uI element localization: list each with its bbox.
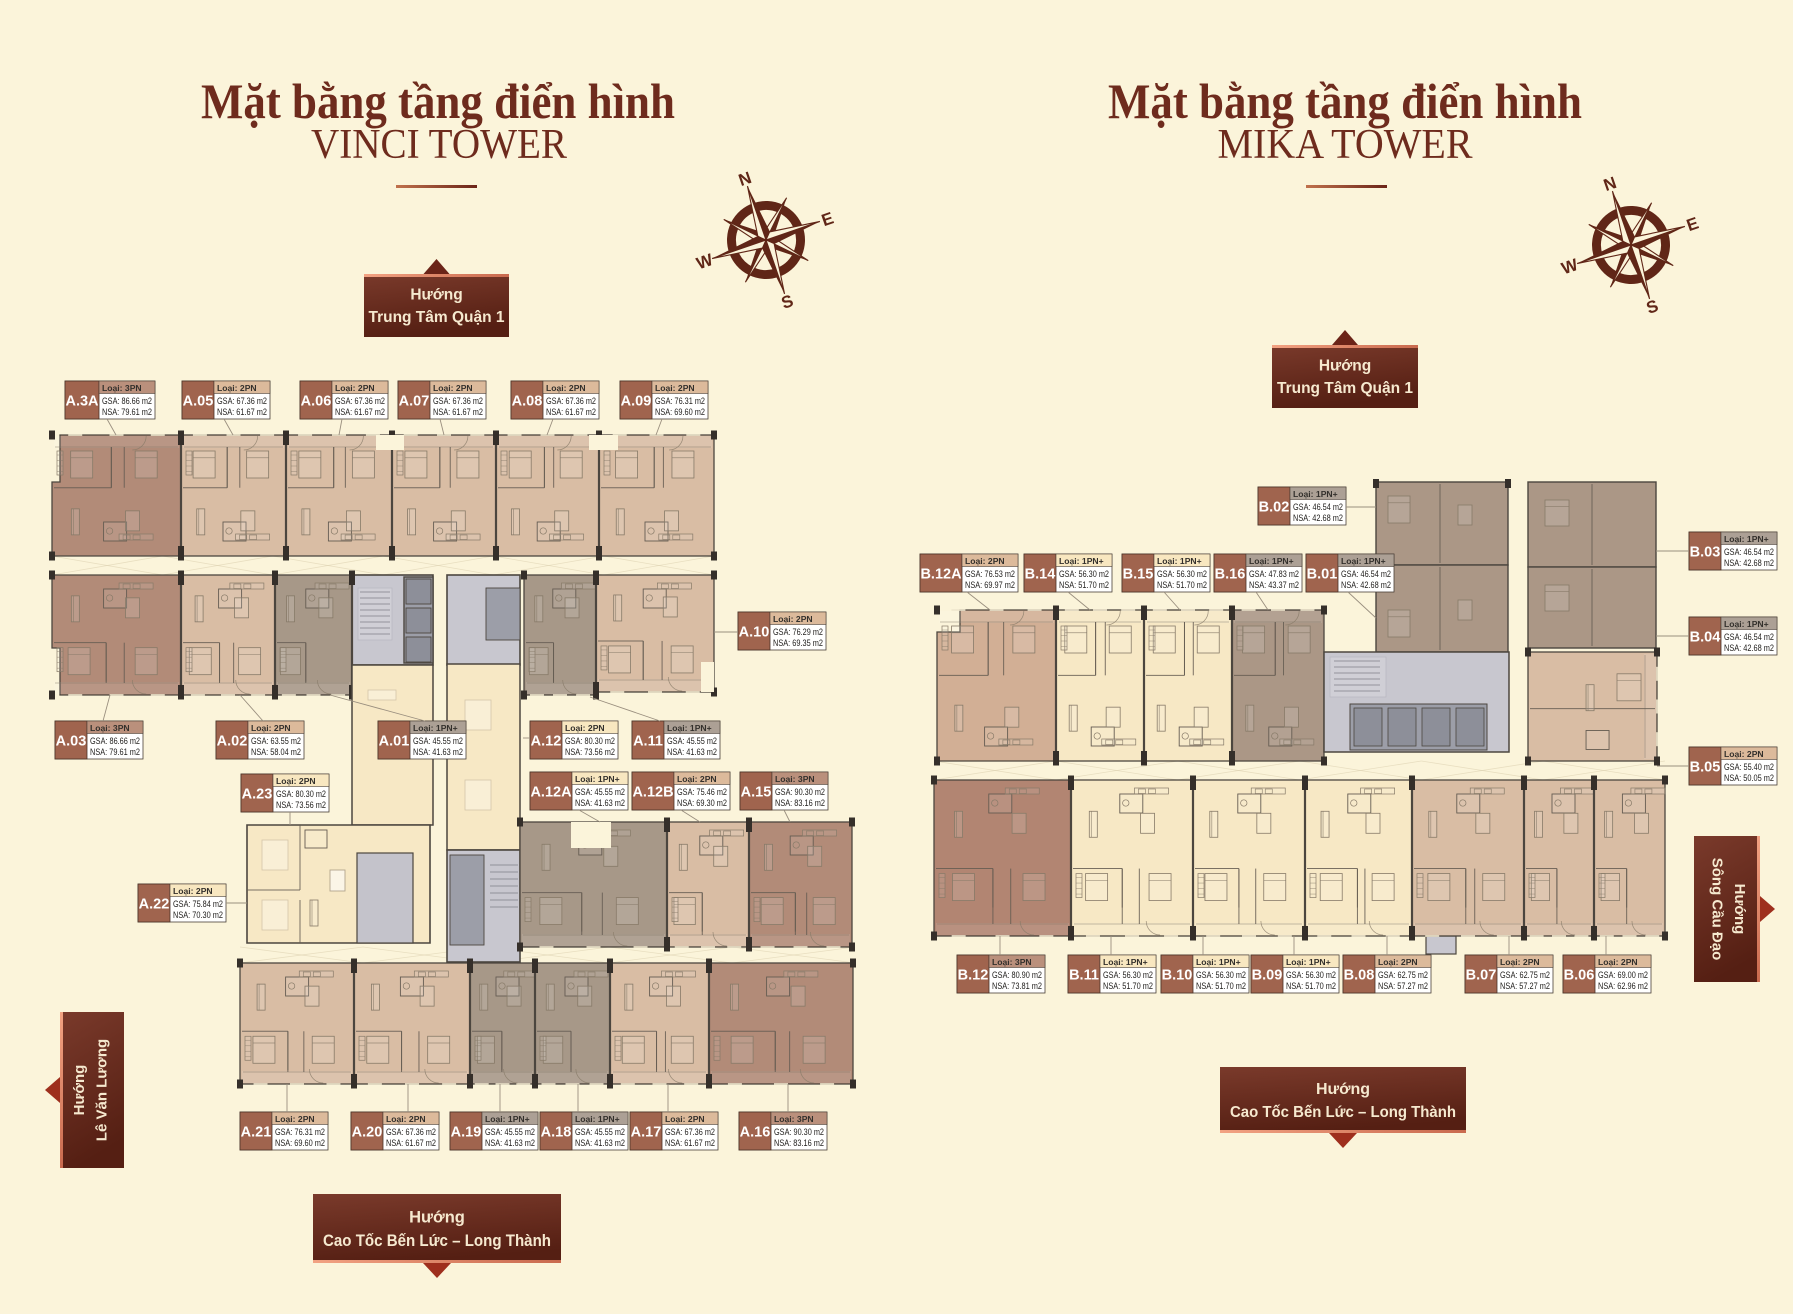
svg-text:GSA: 62.75 m2: GSA: 62.75 m2 bbox=[1378, 970, 1428, 980]
svg-text:GSA: 80.30 m2: GSA: 80.30 m2 bbox=[276, 789, 326, 799]
svg-text:A.06: A.06 bbox=[301, 394, 332, 410]
svg-text:Loại: 2PN: Loại: 2PN bbox=[1724, 749, 1764, 759]
svg-text:NSA: 51.70 m2: NSA: 51.70 m2 bbox=[1059, 580, 1109, 590]
svg-text:B.02: B.02 bbox=[1259, 500, 1290, 516]
svg-text:Loại: 1PN+: Loại: 1PN+ bbox=[1724, 619, 1769, 629]
svg-text:VINCI TOWER: VINCI TOWER bbox=[311, 122, 567, 168]
svg-text:Loại: 1PN+: Loại: 1PN+ bbox=[1059, 556, 1104, 566]
svg-text:GSA: 86.66 m2: GSA: 86.66 m2 bbox=[90, 736, 140, 746]
svg-text:GSA: 76.31 m2: GSA: 76.31 m2 bbox=[275, 1127, 325, 1137]
svg-text:GSA: 67.36 m2: GSA: 67.36 m2 bbox=[217, 396, 267, 406]
svg-text:Loại: 3PN: Loại: 3PN bbox=[775, 774, 815, 784]
svg-text:GSA: 67.36 m2: GSA: 67.36 m2 bbox=[546, 396, 596, 406]
svg-text:Loại: 2PN: Loại: 2PN bbox=[217, 383, 257, 393]
svg-text:Loại: 1PN+: Loại: 1PN+ bbox=[1196, 957, 1241, 967]
svg-text:GSA: 46.54 m2: GSA: 46.54 m2 bbox=[1341, 569, 1391, 579]
svg-text:GSA: 56.30 m2: GSA: 56.30 m2 bbox=[1157, 569, 1207, 579]
svg-text:Sông Cầu Đạo: Sông Cầu Đạo bbox=[1709, 858, 1726, 961]
svg-text:Loại: 2PN: Loại: 2PN bbox=[173, 886, 213, 896]
svg-text:NSA: 57.27 m2: NSA: 57.27 m2 bbox=[1500, 981, 1550, 991]
svg-text:A.20: A.20 bbox=[352, 1125, 383, 1141]
svg-text:A.07: A.07 bbox=[399, 394, 430, 410]
svg-text:NSA: 61.67 m2: NSA: 61.67 m2 bbox=[546, 407, 596, 417]
svg-text:A.18: A.18 bbox=[541, 1125, 572, 1141]
svg-text:Loại: 2PN: Loại: 2PN bbox=[773, 614, 813, 624]
svg-text:Loại: 3PN: Loại: 3PN bbox=[90, 723, 130, 733]
svg-text:GSA: 62.75 m2: GSA: 62.75 m2 bbox=[1500, 970, 1550, 980]
svg-text:GSA: 80.90 m2: GSA: 80.90 m2 bbox=[992, 970, 1042, 980]
svg-text:NSA: 83.16 m2: NSA: 83.16 m2 bbox=[774, 1138, 824, 1148]
svg-text:A.02: A.02 bbox=[217, 734, 248, 750]
svg-text:GSA: 47.83 m2: GSA: 47.83 m2 bbox=[1249, 569, 1299, 579]
svg-text:Loại: 1PN+: Loại: 1PN+ bbox=[1249, 556, 1294, 566]
svg-text:B.14: B.14 bbox=[1025, 567, 1056, 583]
svg-text:GSA: 80.30 m2: GSA: 80.30 m2 bbox=[565, 736, 615, 746]
svg-text:Hướng: Hướng bbox=[1731, 884, 1748, 935]
svg-text:Loại: 2PN: Loại: 2PN bbox=[965, 556, 1005, 566]
svg-text:B.04: B.04 bbox=[1690, 630, 1721, 646]
svg-text:NSA: 51.70 m2: NSA: 51.70 m2 bbox=[1196, 981, 1246, 991]
svg-text:B.07: B.07 bbox=[1466, 968, 1497, 984]
svg-text:GSA: 86.66 m2: GSA: 86.66 m2 bbox=[102, 396, 152, 406]
svg-text:B.01: B.01 bbox=[1307, 567, 1338, 583]
svg-text:NSA: 61.67 m2: NSA: 61.67 m2 bbox=[386, 1138, 436, 1148]
svg-text:GSA: 69.00 m2: GSA: 69.00 m2 bbox=[1598, 970, 1648, 980]
svg-text:A.22: A.22 bbox=[139, 897, 170, 913]
svg-text:GSA: 75.84 m2: GSA: 75.84 m2 bbox=[173, 899, 223, 909]
svg-text:Hướng: Hướng bbox=[1316, 1081, 1370, 1098]
svg-text:Loại: 2PN: Loại: 2PN bbox=[386, 1114, 426, 1124]
svg-text:Loại: 2PN: Loại: 2PN bbox=[1378, 957, 1418, 967]
svg-text:Loại: 1PN+: Loại: 1PN+ bbox=[1293, 489, 1338, 499]
svg-text:GSA: 90.30 m2: GSA: 90.30 m2 bbox=[775, 787, 825, 797]
svg-text:NSA: 70.30 m2: NSA: 70.30 m2 bbox=[173, 910, 223, 920]
svg-text:Mặt bằng tầng điển hình: Mặt bằng tầng điển hình bbox=[201, 73, 675, 129]
svg-text:GSA: 75.46 m2: GSA: 75.46 m2 bbox=[677, 787, 727, 797]
svg-text:NSA: 69.60 m2: NSA: 69.60 m2 bbox=[655, 407, 705, 417]
svg-text:GSA: 76.53 m2: GSA: 76.53 m2 bbox=[965, 569, 1015, 579]
svg-text:Loại: 2PN: Loại: 2PN bbox=[677, 774, 717, 784]
svg-text:NSA: 41.63 m2: NSA: 41.63 m2 bbox=[413, 747, 463, 757]
svg-text:GSA: 90.30 m2: GSA: 90.30 m2 bbox=[774, 1127, 824, 1137]
svg-text:A.03: A.03 bbox=[56, 734, 87, 750]
svg-text:NSA: 50.05 m2: NSA: 50.05 m2 bbox=[1724, 773, 1774, 783]
svg-text:Loại: 2PN: Loại: 2PN bbox=[1598, 957, 1638, 967]
svg-text:Loại: 1PN+: Loại: 1PN+ bbox=[1724, 534, 1769, 544]
svg-text:NSA: 41.63 m2: NSA: 41.63 m2 bbox=[575, 798, 625, 808]
svg-text:NSA: 73.81 m2: NSA: 73.81 m2 bbox=[992, 981, 1042, 991]
svg-text:NSA: 42.68 m2: NSA: 42.68 m2 bbox=[1341, 580, 1391, 590]
svg-text:B.12: B.12 bbox=[958, 968, 989, 984]
svg-text:A.01: A.01 bbox=[379, 734, 410, 750]
svg-text:Loại: 1PN+: Loại: 1PN+ bbox=[413, 723, 458, 733]
svg-text:GSA: 55.40 m2: GSA: 55.40 m2 bbox=[1724, 762, 1774, 772]
svg-text:NSA: 79.61 m2: NSA: 79.61 m2 bbox=[102, 407, 152, 417]
svg-text:NSA: 61.67 m2: NSA: 61.67 m2 bbox=[217, 407, 267, 417]
svg-text:NSA: 73.56 m2: NSA: 73.56 m2 bbox=[276, 800, 326, 810]
svg-text:Loại: 2PN: Loại: 2PN bbox=[546, 383, 586, 393]
svg-text:A.12: A.12 bbox=[531, 734, 562, 750]
svg-text:Loại: 1PN+: Loại: 1PN+ bbox=[1286, 957, 1331, 967]
svg-text:NSA: 41.63 m2: NSA: 41.63 m2 bbox=[575, 1138, 625, 1148]
svg-text:NSA: 61.67 m2: NSA: 61.67 m2 bbox=[433, 407, 483, 417]
svg-text:GSA: 67.36 m2: GSA: 67.36 m2 bbox=[433, 396, 483, 406]
svg-text:NSA: 69.30 m2: NSA: 69.30 m2 bbox=[677, 798, 727, 808]
svg-text:B.06: B.06 bbox=[1564, 968, 1595, 984]
svg-text:Trung Tâm Quận 1: Trung Tâm Quận 1 bbox=[368, 309, 504, 326]
svg-text:GSA: 45.55 m2: GSA: 45.55 m2 bbox=[413, 736, 463, 746]
svg-text:GSA: 56.30 m2: GSA: 56.30 m2 bbox=[1196, 970, 1246, 980]
svg-text:NSA: 42.68 m2: NSA: 42.68 m2 bbox=[1724, 643, 1774, 653]
svg-text:A.21: A.21 bbox=[241, 1125, 272, 1141]
svg-text:Loại: 2PN: Loại: 2PN bbox=[1500, 957, 1540, 967]
svg-text:A.15: A.15 bbox=[741, 785, 772, 801]
svg-text:Loại: 2PN: Loại: 2PN bbox=[433, 383, 473, 393]
svg-text:Hướng: Hướng bbox=[409, 1208, 465, 1226]
svg-text:GSA: 67.36 m2: GSA: 67.36 m2 bbox=[386, 1127, 436, 1137]
svg-text:Loại: 1PN+: Loại: 1PN+ bbox=[575, 1114, 620, 1124]
svg-text:GSA: 45.55 m2: GSA: 45.55 m2 bbox=[485, 1127, 535, 1137]
svg-text:Loại: 2PN: Loại: 2PN bbox=[251, 723, 291, 733]
svg-text:Loại: 3PN: Loại: 3PN bbox=[992, 957, 1032, 967]
svg-text:NSA: 61.67 m2: NSA: 61.67 m2 bbox=[665, 1138, 715, 1148]
svg-text:B.09: B.09 bbox=[1252, 968, 1283, 984]
svg-text:Loại: 1PN+: Loại: 1PN+ bbox=[667, 723, 712, 733]
svg-text:GSA: 67.36 m2: GSA: 67.36 m2 bbox=[335, 396, 385, 406]
svg-text:NSA: 43.37 m2: NSA: 43.37 m2 bbox=[1249, 580, 1299, 590]
svg-text:Loại: 2PN: Loại: 2PN bbox=[275, 1114, 315, 1124]
svg-text:A.10: A.10 bbox=[739, 625, 770, 641]
svg-text:A.17: A.17 bbox=[631, 1125, 662, 1141]
svg-text:Hướng: Hướng bbox=[71, 1065, 88, 1116]
svg-text:B.11: B.11 bbox=[1069, 968, 1099, 984]
svg-text:NSA: 62.96 m2: NSA: 62.96 m2 bbox=[1598, 981, 1648, 991]
svg-text:NSA: 51.70 m2: NSA: 51.70 m2 bbox=[1286, 981, 1336, 991]
svg-text:Loại: 1PN+: Loại: 1PN+ bbox=[1341, 556, 1386, 566]
svg-text:A.16: A.16 bbox=[740, 1125, 771, 1141]
svg-text:GSA: 46.54 m2: GSA: 46.54 m2 bbox=[1724, 632, 1774, 642]
svg-text:Hướng: Hướng bbox=[1319, 358, 1371, 375]
svg-text:Trung Tâm Quận 1: Trung Tâm Quận 1 bbox=[1277, 380, 1413, 397]
svg-text:B.05: B.05 bbox=[1690, 760, 1721, 776]
svg-text:Lê Văn Lương: Lê Văn Lương bbox=[94, 1039, 111, 1141]
svg-text:Hướng: Hướng bbox=[410, 287, 462, 304]
svg-text:NSA: 61.67 m2: NSA: 61.67 m2 bbox=[335, 407, 385, 417]
svg-text:A.12A: A.12A bbox=[530, 785, 572, 801]
svg-text:Loại: 2PN: Loại: 2PN bbox=[335, 383, 375, 393]
svg-text:Loại: 3PN: Loại: 3PN bbox=[102, 383, 142, 393]
svg-text:Loại: 2PN: Loại: 2PN bbox=[655, 383, 695, 393]
svg-text:MIKA TOWER: MIKA TOWER bbox=[1218, 122, 1473, 168]
svg-text:B.12A: B.12A bbox=[920, 567, 962, 583]
svg-text:Loại: 2PN: Loại: 2PN bbox=[665, 1114, 705, 1124]
svg-text:NSA: 58.04 m2: NSA: 58.04 m2 bbox=[251, 747, 301, 757]
svg-text:A.19: A.19 bbox=[451, 1125, 482, 1141]
svg-text:A.08: A.08 bbox=[512, 394, 543, 410]
svg-text:GSA: 45.55 m2: GSA: 45.55 m2 bbox=[575, 787, 625, 797]
svg-text:Loại: 2PN: Loại: 2PN bbox=[565, 723, 605, 733]
svg-text:NSA: 69.60 m2: NSA: 69.60 m2 bbox=[275, 1138, 325, 1148]
svg-text:A.11: A.11 bbox=[633, 734, 663, 750]
svg-text:NSA: 42.68 m2: NSA: 42.68 m2 bbox=[1293, 513, 1343, 523]
svg-text:Loại: 1PN+: Loại: 1PN+ bbox=[1103, 957, 1148, 967]
svg-text:Mặt bằng tầng điển hình: Mặt bằng tầng điển hình bbox=[1108, 73, 1582, 129]
svg-text:NSA: 73.56 m2: NSA: 73.56 m2 bbox=[565, 747, 615, 757]
svg-text:NSA: 51.70 m2: NSA: 51.70 m2 bbox=[1103, 981, 1153, 991]
svg-text:NSA: 57.27 m2: NSA: 57.27 m2 bbox=[1378, 981, 1428, 991]
svg-text:B.08: B.08 bbox=[1344, 968, 1375, 984]
svg-text:Cao Tốc Bến Lức – Long Thành: Cao Tốc Bến Lức – Long Thành bbox=[323, 1232, 551, 1250]
svg-text:NSA: 42.68 m2: NSA: 42.68 m2 bbox=[1724, 558, 1774, 568]
svg-text:A.05: A.05 bbox=[183, 394, 214, 410]
svg-text:Cao Tốc Bến Lức – Long Thành: Cao Tốc Bến Lức – Long Thành bbox=[1230, 1104, 1456, 1121]
svg-text:GSA: 46.54 m2: GSA: 46.54 m2 bbox=[1293, 502, 1343, 512]
svg-text:GSA: 76.31 m2: GSA: 76.31 m2 bbox=[655, 396, 705, 406]
svg-text:B.15: B.15 bbox=[1123, 567, 1154, 583]
svg-text:A.3A: A.3A bbox=[65, 394, 99, 410]
svg-text:NSA: 79.61 m2: NSA: 79.61 m2 bbox=[90, 747, 140, 757]
svg-text:GSA: 67.36 m2: GSA: 67.36 m2 bbox=[665, 1127, 715, 1137]
svg-text:A.12B: A.12B bbox=[632, 785, 673, 801]
svg-text:Loại: 1PN+: Loại: 1PN+ bbox=[575, 774, 620, 784]
svg-text:NSA: 83.16 m2: NSA: 83.16 m2 bbox=[775, 798, 825, 808]
svg-text:B.03: B.03 bbox=[1690, 545, 1721, 561]
svg-text:B.10: B.10 bbox=[1162, 968, 1193, 984]
svg-text:NSA: 69.35 m2: NSA: 69.35 m2 bbox=[773, 638, 823, 648]
svg-text:NSA: 69.97 m2: NSA: 69.97 m2 bbox=[965, 580, 1015, 590]
svg-text:GSA: 45.55 m2: GSA: 45.55 m2 bbox=[575, 1127, 625, 1137]
svg-text:GSA: 56.30 m2: GSA: 56.30 m2 bbox=[1286, 970, 1336, 980]
svg-text:B.16: B.16 bbox=[1215, 567, 1246, 583]
svg-text:Loại: 2PN: Loại: 2PN bbox=[276, 776, 316, 786]
svg-text:GSA: 63.55 m2: GSA: 63.55 m2 bbox=[251, 736, 301, 746]
svg-text:GSA: 56.30 m2: GSA: 56.30 m2 bbox=[1103, 970, 1153, 980]
svg-text:GSA: 76.29 m2: GSA: 76.29 m2 bbox=[773, 627, 823, 637]
svg-text:NSA: 51.70 m2: NSA: 51.70 m2 bbox=[1157, 580, 1207, 590]
svg-text:A.09: A.09 bbox=[621, 394, 652, 410]
svg-text:NSA: 41.63 m2: NSA: 41.63 m2 bbox=[485, 1138, 535, 1148]
svg-text:GSA: 45.55 m2: GSA: 45.55 m2 bbox=[667, 736, 717, 746]
svg-text:Loại: 1PN+: Loại: 1PN+ bbox=[485, 1114, 530, 1124]
svg-text:A.23: A.23 bbox=[242, 787, 273, 803]
svg-text:Loại: 1PN+: Loại: 1PN+ bbox=[1157, 556, 1202, 566]
svg-text:Loại: 3PN: Loại: 3PN bbox=[774, 1114, 814, 1124]
svg-text:NSA: 41.63 m2: NSA: 41.63 m2 bbox=[667, 747, 717, 757]
svg-text:GSA: 46.54 m2: GSA: 46.54 m2 bbox=[1724, 547, 1774, 557]
svg-text:GSA: 56.30 m2: GSA: 56.30 m2 bbox=[1059, 569, 1109, 579]
